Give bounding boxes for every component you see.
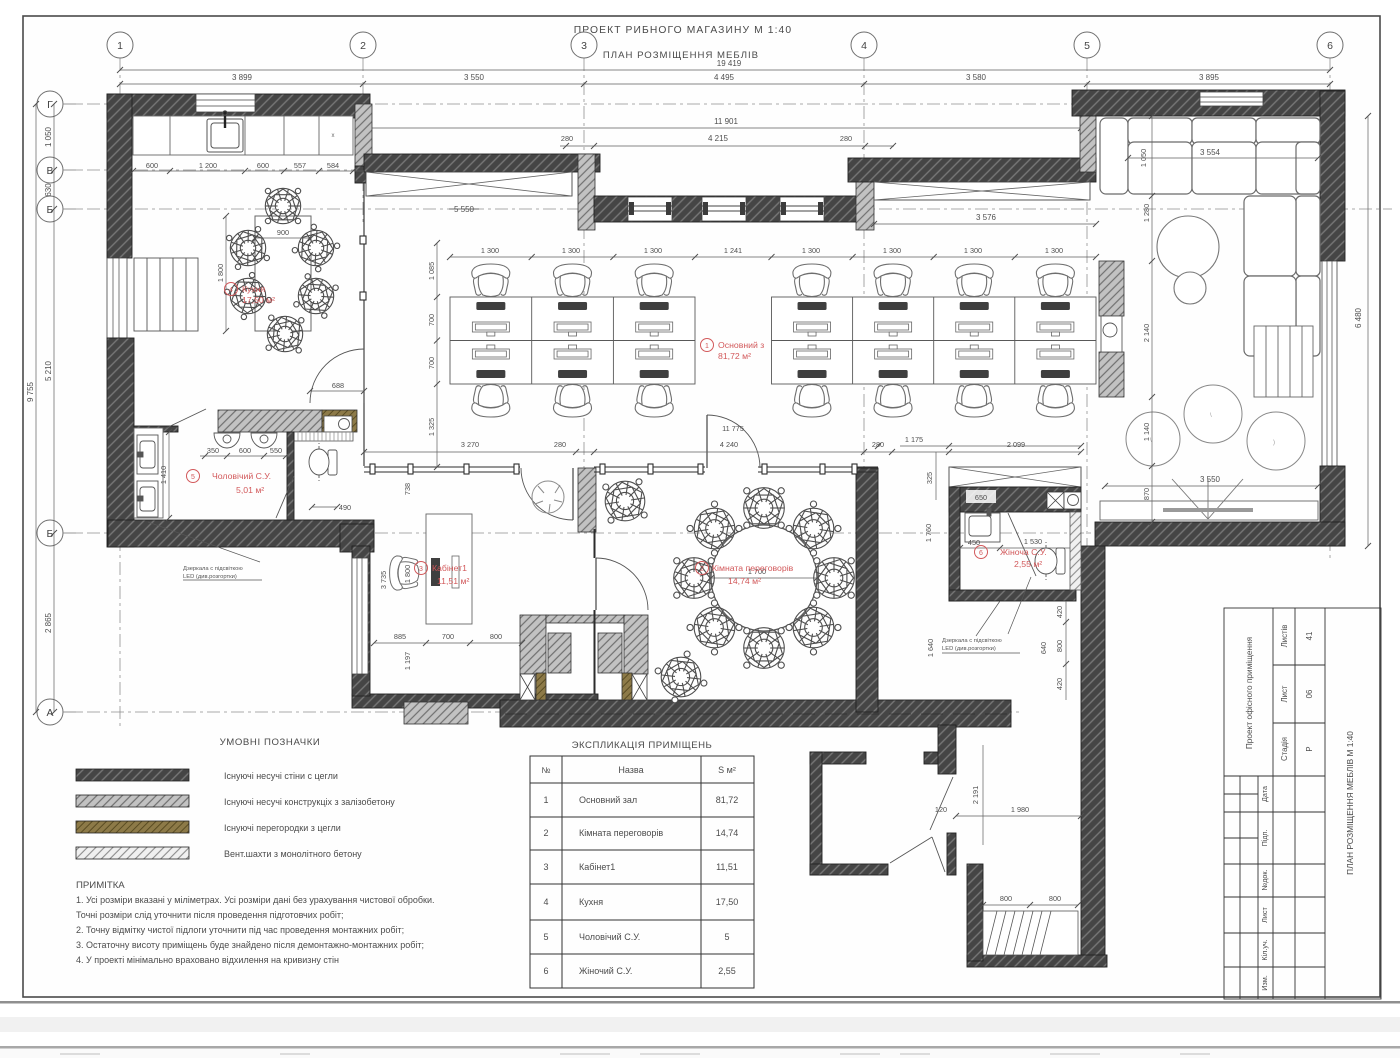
svg-text:738: 738 [403,483,412,495]
svg-text:3 550: 3 550 [464,73,485,82]
svg-text:700: 700 [442,632,454,641]
svg-text:ПРОЕКТ РИБНОГО МАГАЗИНУ М 1:4: ПРОЕКТ РИБНОГО МАГАЗИНУ М 1:40 [574,25,792,36]
svg-text:Чоловічий С.У.: Чоловічий С.У. [579,932,640,942]
svg-text:420: 420 [1055,606,1064,618]
svg-text:1 760: 1 760 [924,524,933,542]
svg-text:1 410: 1 410 [159,466,168,484]
svg-text:1 800: 1 800 [403,565,412,583]
svg-text:688: 688 [332,381,344,390]
svg-text:№: № [542,765,551,775]
svg-text:3 735: 3 735 [379,571,388,589]
svg-text:1 640: 1 640 [926,639,935,657]
svg-text:1 980: 1 980 [1011,805,1029,814]
svg-text:81,72: 81,72 [716,795,739,805]
svg-text:4: 4 [229,287,233,294]
svg-text:14,74: 14,74 [716,828,739,838]
svg-text:280: 280 [872,440,884,449]
svg-text:Підп.: Підп. [1260,830,1269,847]
svg-text:1 175: 1 175 [905,435,923,444]
svg-text:11,51 м²: 11,51 м² [437,576,469,586]
svg-text:2: 2 [360,40,366,52]
svg-text:1 800: 1 800 [216,264,225,282]
svg-text:870: 870 [1142,488,1151,500]
svg-text:1 197: 1 197 [403,652,412,670]
svg-text:6: 6 [979,550,983,557]
svg-text:2,55 м²: 2,55 м² [1014,559,1042,569]
svg-text:5: 5 [724,932,729,942]
svg-text:550: 550 [270,446,282,455]
svg-text:Існуючі несучі стіни с цегли: Існуючі несучі стіни с цегли [224,771,338,781]
svg-text:LED (див.розгортки): LED (див.розгортки) [183,574,237,580]
svg-text:1: 1 [705,343,709,350]
svg-text:Кухня: Кухня [579,897,603,907]
svg-text:19 419: 19 419 [717,59,742,68]
svg-text:2 099: 2 099 [1007,440,1025,449]
svg-text:ПЛАН РОЗМІЩЕННЯ МЕБЛІВ М 1:40: ПЛАН РОЗМІЩЕННЯ МЕБЛІВ М 1:40 [1345,731,1355,875]
svg-text:600: 600 [146,161,158,170]
svg-text:11,51: 11,51 [716,862,738,872]
svg-text:1 300: 1 300 [802,246,820,255]
svg-text:2 865: 2 865 [44,612,53,633]
svg-text:600: 600 [257,161,269,170]
svg-text:ПРИМІТКА: ПРИМІТКА [76,880,125,891]
svg-text:700: 700 [427,314,436,326]
svg-text:4. У проекті мінімально врахов: 4. У проекті мінімально враховано відхил… [76,955,339,965]
svg-text:Існуючі перегородки з цегли: Існуючі перегородки з цегли [224,823,341,833]
svg-text:Основний з: Основний з [718,340,764,350]
svg-text:700: 700 [427,357,436,369]
svg-text:4: 4 [861,40,867,52]
svg-text:S м²: S м² [718,765,736,775]
svg-text:Жіноча С.У.: Жіноча С.У. [1000,547,1047,557]
svg-text:1 300: 1 300 [481,246,499,255]
svg-text:Дзеркала с підсвіткою: Дзеркала с підсвіткою [183,566,243,572]
svg-text:3 899: 3 899 [232,73,253,82]
svg-text:2. Точну відмітку чистої підло: 2. Точну відмітку чистої підлоги уточнит… [76,925,404,935]
svg-text:2 140: 2 140 [1142,324,1151,342]
svg-text:Р: Р [1305,746,1314,751]
svg-text:1 325: 1 325 [427,418,436,436]
svg-text:Кіл.уч.: Кіл.уч. [1260,939,1269,960]
svg-text:5: 5 [1084,40,1090,52]
svg-text:Лист: Лист [1260,906,1269,922]
svg-text:Точні розміри слід уточнити пі: Точні розміри слід уточнити після провед… [76,910,344,920]
svg-text:584: 584 [327,161,339,170]
svg-text:Дата: Дата [1260,786,1269,802]
svg-text:№док.: №док. [1260,869,1269,890]
svg-text:x: x [332,133,335,139]
svg-text:6 480: 6 480 [1354,307,1363,328]
svg-text:630: 630 [44,183,53,197]
svg-text:3 270: 3 270 [461,440,479,449]
svg-text:81,72 м²: 81,72 м² [718,351,751,361]
svg-text:Изм.: Изм. [1260,975,1269,990]
svg-text:280: 280 [561,134,573,143]
svg-text:420: 420 [1055,678,1064,690]
svg-text:600: 600 [239,446,251,455]
svg-text:ЭКСПЛИКАЦІЯ ПРИМІЩЕНЬ: ЭКСПЛИКАЦІЯ ПРИМІЩЕНЬ [572,740,713,751]
svg-text:Кімната переговорів: Кімната переговорів [712,563,794,573]
svg-text:1 050: 1 050 [1139,149,1148,167]
svg-text:Назва: Назва [618,765,643,775]
svg-text:1. Усі розміри вказані у мілім: 1. Усі розміри вказані у міліметрах. Усі… [76,895,434,905]
svg-text:Проект офісного приміщення: Проект офісного приміщення [1244,637,1254,749]
svg-text:4 240: 4 240 [720,440,738,449]
svg-text:557: 557 [294,161,306,170]
svg-text:640: 640 [1039,642,1048,654]
svg-text:14,74 м²: 14,74 м² [728,576,761,586]
svg-text:Кабінет1: Кабінет1 [432,563,467,573]
svg-text:Кабінет1: Кабінет1 [579,862,615,872]
svg-text:280: 280 [840,134,852,143]
svg-text:1 200: 1 200 [199,161,217,170]
svg-text:5 210: 5 210 [44,360,53,381]
svg-text:4 215: 4 215 [708,134,729,143]
svg-text:2: 2 [700,566,704,573]
svg-text:280: 280 [554,440,566,449]
svg-text:Основний зал: Основний зал [579,795,637,805]
svg-text:5 550: 5 550 [454,205,475,214]
svg-text:1 280: 1 280 [1142,204,1151,222]
svg-text:1 300: 1 300 [562,246,580,255]
svg-text:1 300: 1 300 [883,246,901,255]
svg-text:1: 1 [117,40,123,52]
svg-text:800: 800 [1055,640,1064,652]
svg-text:УМОВНІ ПОЗНАЧКИ: УМОВНІ ПОЗНАЧКИ [220,737,321,748]
svg-text:Жіночий С.У.: Жіночий С.У. [579,966,632,976]
svg-text:6: 6 [543,966,548,976]
svg-text:350: 350 [207,446,219,455]
svg-text:06: 06 [1305,690,1314,699]
svg-text:6: 6 [1327,40,1333,52]
svg-text:1 300: 1 300 [964,246,982,255]
svg-text:5: 5 [543,932,548,942]
svg-text:Вент.шахти з монолітного бетон: Вент.шахти з монолітного бетону [224,849,362,859]
svg-text:Кімната переговорів: Кімната переговорів [579,828,663,838]
svg-text:1 300: 1 300 [644,246,662,255]
svg-text:120: 120 [935,805,947,814]
svg-text:3 550: 3 550 [1200,475,1221,484]
svg-text:885: 885 [394,632,406,641]
svg-text:800: 800 [1000,894,1012,903]
svg-text:Дзеркала с підсвіткою: Дзеркала с підсвіткою [942,638,1002,644]
svg-text:3: 3 [581,40,587,52]
svg-text:2: 2 [543,828,548,838]
svg-text:1 530: 1 530 [1024,537,1042,546]
svg-text:3 554: 3 554 [1200,148,1221,157]
svg-text:1: 1 [543,795,548,805]
svg-text:Листів: Листів [1280,625,1289,648]
svg-text:650: 650 [975,493,987,502]
svg-text:1 050: 1 050 [44,126,53,147]
svg-text:3: 3 [543,862,548,872]
svg-text:11 901: 11 901 [714,117,738,126]
svg-text:3 580: 3 580 [966,73,987,82]
svg-text:4 495: 4 495 [714,73,735,82]
svg-text:Чоловічий С.У.: Чоловічий С.У. [212,471,271,481]
svg-text:Г: Г [47,99,53,111]
svg-text:3: 3 [419,566,423,573]
svg-text:41: 41 [1305,632,1314,641]
svg-text:9 755: 9 755 [26,381,35,402]
svg-text:1 241: 1 241 [724,246,742,255]
svg-text:5: 5 [191,474,195,481]
svg-text:LED (див.розгортки): LED (див.розгортки) [942,646,996,652]
svg-text:Стадія: Стадія [1280,737,1289,761]
svg-text:900: 900 [277,228,289,237]
svg-text:3 576: 3 576 [976,213,997,222]
svg-text:Існуючі несучі конструкціх з з: Існуючі несучі конструкціх з залізобетон… [224,797,395,807]
svg-text:5,01 м²: 5,01 м² [236,485,264,495]
svg-text:): ) [1273,440,1275,446]
svg-text:3. Остаточну висоту приміщень: 3. Остаточну висоту приміщень буде знайд… [76,940,424,950]
svg-text:4: 4 [543,897,548,907]
svg-text:Кухня: Кухня [242,284,266,294]
svg-text:800: 800 [1049,894,1061,903]
svg-text:17,50: 17,50 [716,897,739,907]
svg-text:800: 800 [490,632,502,641]
svg-text:2,55: 2,55 [718,966,736,976]
svg-text:17,50 м²: 17,50 м² [242,295,275,305]
svg-text:325: 325 [925,472,934,484]
svg-text:11 775: 11 775 [722,424,744,433]
svg-text:1 085: 1 085 [427,262,436,280]
svg-text:1 300: 1 300 [1045,246,1063,255]
svg-text:1 140: 1 140 [1142,423,1151,441]
svg-text:490: 490 [339,503,351,512]
svg-text:2 191: 2 191 [971,786,980,804]
svg-text:Лист: Лист [1280,685,1289,702]
svg-text:3 895: 3 895 [1199,73,1220,82]
